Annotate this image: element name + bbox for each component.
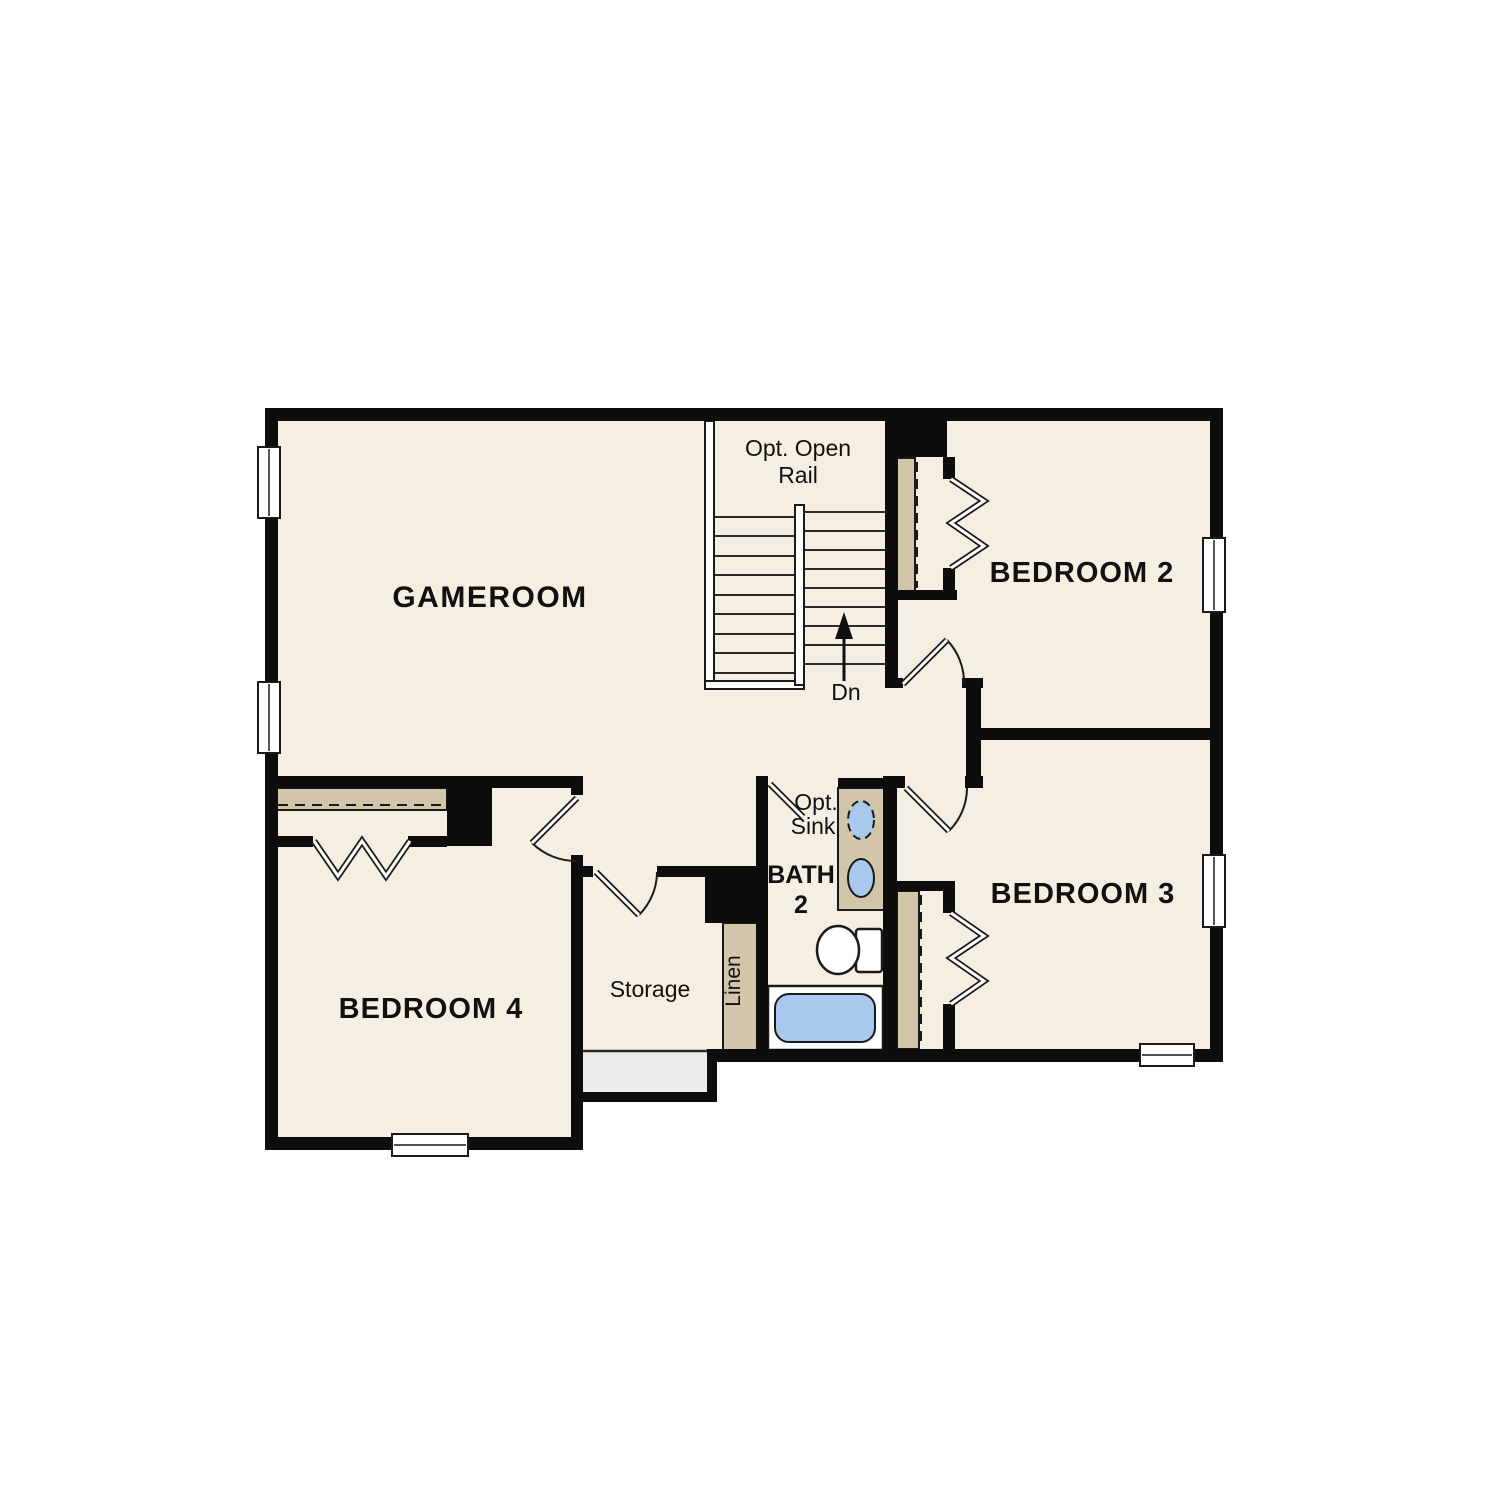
gameroom-window-1 bbox=[258, 447, 280, 518]
bedroom2-window bbox=[1203, 538, 1225, 612]
bedroom3-closet-shelf bbox=[897, 891, 921, 1049]
gameroom-window-2 bbox=[258, 682, 280, 753]
stair-bottom-rail bbox=[705, 681, 804, 689]
bath2-label-line2: 2 bbox=[794, 891, 808, 919]
wall-bedroom4-closet-jamb-left bbox=[265, 836, 313, 847]
wall-bedroom3-north-right bbox=[965, 776, 983, 788]
wall-bedroom4-closet-jamb-right bbox=[408, 836, 447, 847]
wall-bedroom4-east-stub bbox=[571, 776, 583, 795]
wall-stair-corner-mass bbox=[885, 418, 947, 457]
wall-storage-mass bbox=[705, 866, 757, 923]
opt-sink-label-line1: Opt. bbox=[794, 789, 837, 815]
wall-bedroom2-closet-jamb-bottom bbox=[943, 568, 955, 590]
wall-bedroom2-south-left bbox=[885, 678, 903, 688]
bedroom2-label: BEDROOM 2 bbox=[990, 557, 1175, 589]
wall-bedroom2-bedroom3-divider bbox=[975, 728, 1210, 740]
wall-bedroom3-closet-north bbox=[885, 881, 955, 891]
wall-exterior-east bbox=[1210, 408, 1223, 1062]
wall-bedroom4-closet-mass bbox=[447, 788, 492, 846]
floor-plan: GAMEROOM BEDROOM 2 BEDROOM 3 BEDROOM 4 O… bbox=[0, 0, 1500, 1500]
bedroom4-closet-shelf bbox=[273, 788, 447, 810]
bath2-label-line1: BATH bbox=[767, 861, 835, 889]
wall-landing-east bbox=[707, 1056, 717, 1102]
sink bbox=[848, 859, 874, 897]
bedroom3-window-east bbox=[1203, 855, 1225, 927]
stair-left-rail bbox=[705, 421, 714, 689]
wall-landing-south bbox=[575, 1092, 717, 1102]
floor-bedroom4-wing bbox=[271, 776, 577, 1143]
wall-bedroom2-closet-jamb-top bbox=[943, 457, 955, 479]
wall-stair-east bbox=[885, 418, 898, 688]
wall-bath-east bbox=[883, 776, 897, 1062]
bedroom2-closet-shelf bbox=[895, 458, 917, 591]
gameroom-label: GAMEROOM bbox=[392, 581, 587, 614]
bedroom3-label: BEDROOM 3 bbox=[991, 878, 1176, 910]
opt-sink-label-line2: Sink bbox=[791, 813, 836, 839]
bath2-vanity bbox=[838, 788, 885, 910]
bathtub bbox=[768, 986, 883, 1050]
stair-center-rail bbox=[795, 505, 804, 685]
wall-bath-west bbox=[756, 776, 768, 1049]
linen-label: Linen bbox=[722, 955, 745, 1006]
wall-bath-north-over-vanity bbox=[838, 778, 885, 788]
wall-bedroom4-east bbox=[571, 855, 583, 1137]
stair-note-line1: Opt. Open bbox=[745, 435, 851, 461]
bedroom4-window bbox=[392, 1134, 468, 1156]
wall-storage-north-stub bbox=[583, 866, 593, 877]
stair-note-line2: Rail bbox=[778, 462, 818, 488]
bedroom3-window-south bbox=[1140, 1044, 1194, 1066]
lower-landing-area bbox=[577, 1050, 707, 1094]
storage-label: Storage bbox=[610, 976, 691, 1002]
wall-bedroom3-closet-jamb-top bbox=[943, 891, 955, 913]
toilet-bowl bbox=[817, 926, 859, 974]
wall-bedroom3-north-left bbox=[897, 776, 905, 788]
wall-storage-north bbox=[657, 866, 705, 877]
bedroom4-label: BEDROOM 4 bbox=[339, 993, 524, 1025]
toilet bbox=[817, 926, 882, 974]
wall-bedroom3-closet-jamb-bottom bbox=[943, 1004, 955, 1049]
bathtub-basin bbox=[775, 994, 875, 1042]
wall-gameroom-south bbox=[265, 776, 583, 788]
wall-exterior-north bbox=[265, 408, 1223, 421]
optional-sink bbox=[848, 801, 874, 839]
stair-down-label: Dn bbox=[831, 679, 860, 705]
wall-bedroom2-closet-south bbox=[885, 590, 957, 600]
